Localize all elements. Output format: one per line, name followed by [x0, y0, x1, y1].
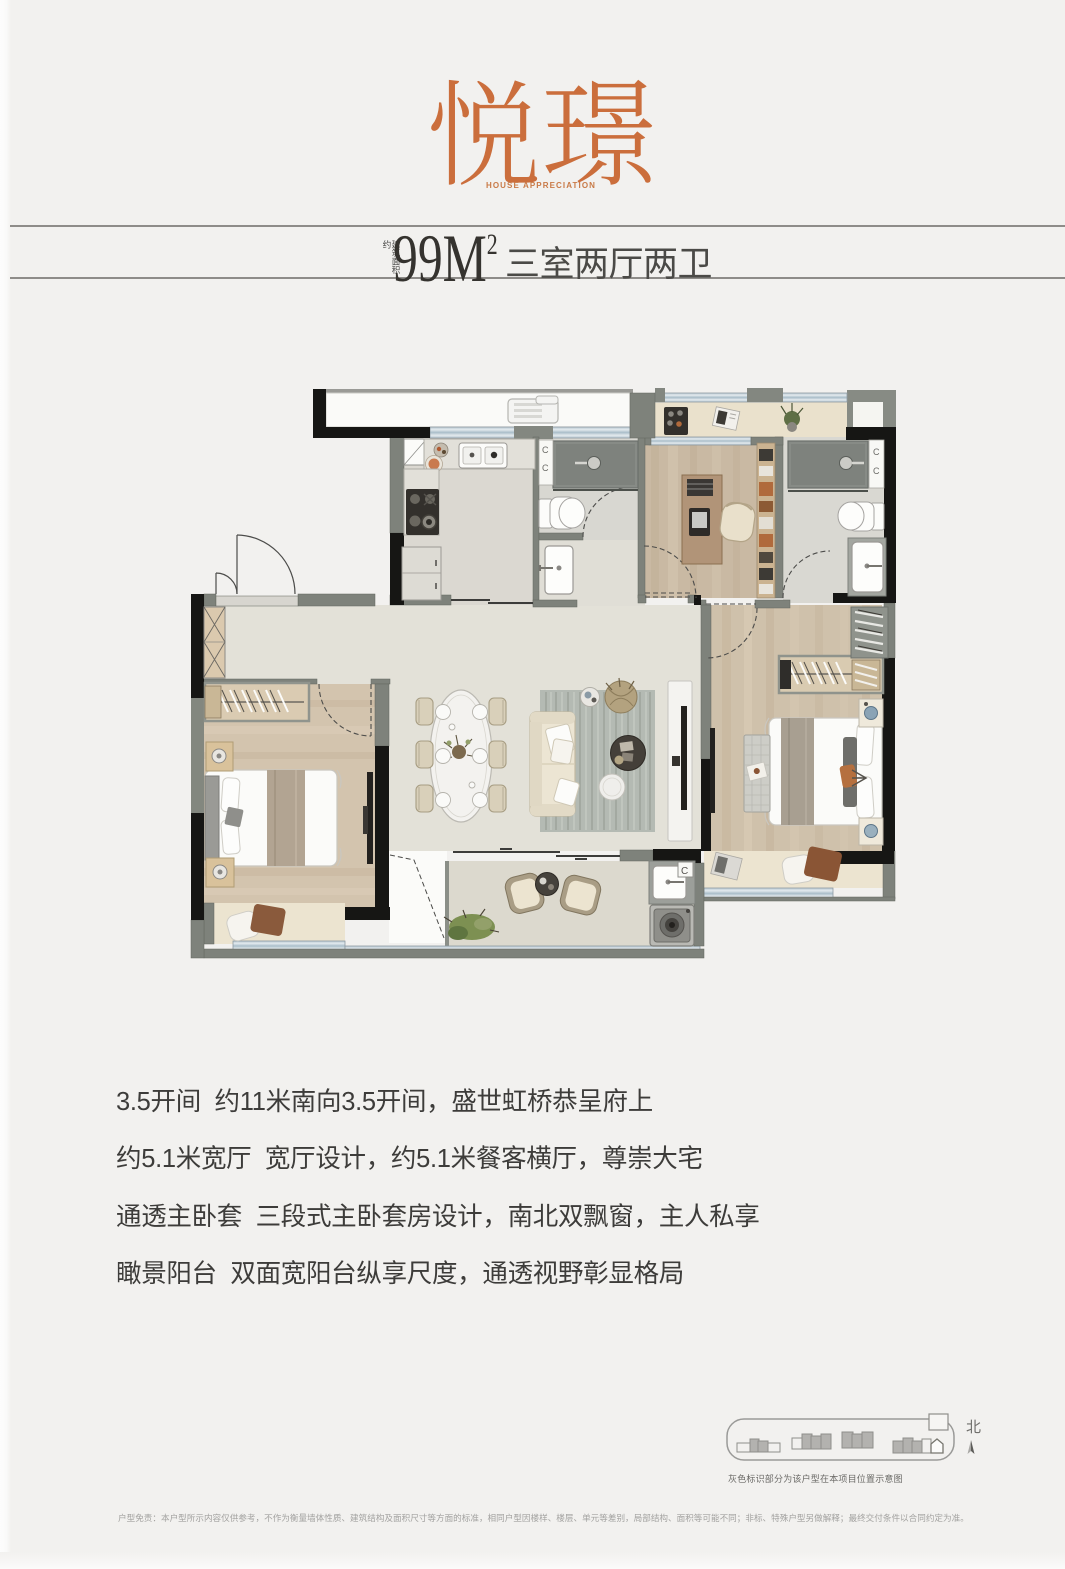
svg-text:C: C [542, 463, 549, 473]
svg-text:C: C [873, 447, 880, 457]
svg-text:C: C [873, 466, 880, 476]
svg-text:C: C [542, 445, 549, 455]
svg-text:北: 北 [966, 1419, 981, 1436]
svg-text:C: C [681, 866, 688, 877]
